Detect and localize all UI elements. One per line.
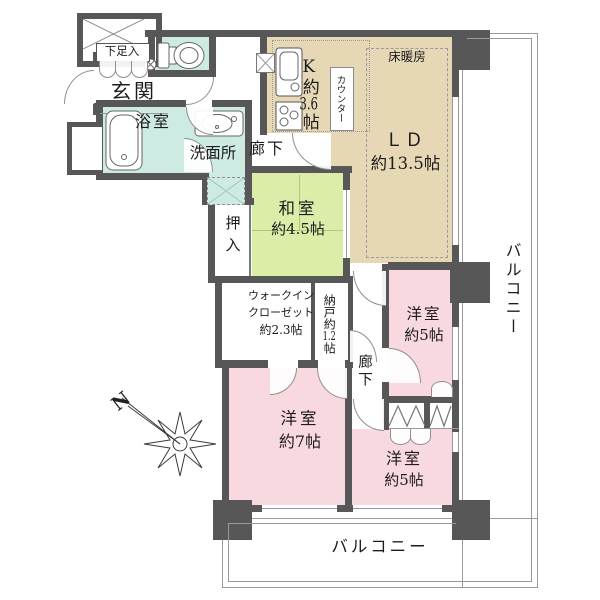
folding-door-icon — [430, 404, 453, 428]
pipe-space-small — [256, 53, 275, 73]
label-wic-2: クローゼット — [236, 307, 326, 319]
nando-num: 1.2 — [322, 330, 336, 342]
wall — [212, 100, 252, 107]
label-ld-name: ＬＤ — [365, 131, 445, 151]
label-balcony-right: バルコニー — [503, 222, 521, 357]
floorplan: N 下足入 玄関 浴室 洗面所 廊下 K約3.6帖 カウンター 床暖房 ＬＤ 約… — [0, 0, 600, 600]
washing-machine-space — [207, 177, 245, 205]
wall — [260, 37, 267, 135]
wall — [452, 380, 459, 434]
cabinet-door-arc — [99, 61, 116, 78]
label-bedroom7-name: 洋室 — [270, 410, 330, 428]
wall — [145, 30, 459, 37]
label-washitsu-size: 約4.5帖 — [264, 221, 332, 238]
window-line — [458, 97, 459, 245]
wall — [245, 166, 352, 173]
balcony-inner-line — [467, 38, 531, 39]
wall — [215, 276, 222, 368]
label-balcony-bottom: バルコニー — [305, 538, 455, 556]
label-hall-lower: 廊下 — [355, 347, 371, 395]
pillar — [452, 30, 490, 70]
entrance-door-arc — [64, 70, 94, 104]
kitchen-num: 3.6 — [299, 96, 319, 113]
wall — [209, 30, 216, 77]
floor-heating-zone — [366, 48, 448, 258]
toilet-door-arc — [186, 77, 214, 105]
label-bedroom7-size: 約7帖 — [270, 433, 330, 451]
balcony-inner-line — [531, 38, 532, 582]
wall — [452, 303, 459, 327]
balcony-inner-line — [228, 523, 229, 581]
wall — [208, 205, 215, 283]
nando-prefix: 納戸約 — [322, 294, 336, 330]
label-nando: 納戸約1.2帖 — [322, 287, 335, 361]
wall — [96, 173, 209, 180]
compass-icon: N — [108, 382, 228, 494]
cabinet-door-arc — [115, 61, 132, 78]
wall — [298, 360, 318, 368]
balcony-inner-line — [228, 523, 456, 524]
label-bedroom5-top-name: 洋室 — [396, 306, 452, 323]
pipe-space-box — [67, 122, 102, 175]
kitchen-prefix: K約 — [299, 57, 319, 96]
pillar — [452, 500, 490, 540]
folding-door-arc — [410, 429, 431, 445]
window-line — [353, 508, 442, 509]
oshiire-sliding-line — [249, 205, 251, 276]
label-wic-3: 約2.3帖 — [236, 324, 326, 337]
wall — [388, 262, 459, 270]
window-line — [458, 327, 459, 380]
window-line — [452, 327, 453, 380]
corridor-door-arc — [353, 271, 386, 306]
toilet-icon — [157, 39, 207, 72]
label-genkan: 玄関 — [100, 80, 168, 102]
label-wic-1: ウォークイン — [236, 290, 326, 302]
window-line — [262, 508, 337, 509]
label-bedroom5-bottom-size: 約5帖 — [374, 472, 434, 489]
label-counter: カウンター — [334, 70, 344, 128]
label-bedroom5-bottom-name: 洋室 — [374, 450, 434, 468]
folding-door-arc — [431, 381, 453, 397]
sliding-door-line — [346, 190, 347, 258]
folding-door-arc — [390, 429, 411, 445]
label-ld-size: 約13.5帖 — [358, 155, 453, 173]
label-shoe-cabinet: 下足入 — [97, 45, 147, 58]
balcony-inner-line — [228, 581, 531, 582]
pillar — [450, 262, 490, 303]
label-bedroom5-top-size: 約5帖 — [396, 327, 452, 344]
pillar — [213, 500, 252, 540]
label-washitsu-name: 和室 — [268, 200, 328, 218]
hatch-x — [257, 54, 274, 72]
window-line — [452, 432, 453, 452]
wall — [383, 396, 459, 403]
label-hall-upper: 廊下 — [246, 140, 288, 158]
ld-entry-door-arc — [292, 133, 331, 170]
label-floor-heating: 床暖房 — [380, 50, 434, 64]
compass-n: N — [108, 387, 135, 415]
bedroom5-bottom-door-arc — [353, 399, 384, 431]
wall — [176, 100, 186, 107]
label-oshiire: 押入 — [224, 206, 241, 268]
kitchen-suffix: 帖 — [299, 113, 319, 131]
window-line — [458, 432, 459, 452]
label-kitchen: K約3.6帖 — [299, 50, 318, 138]
nando-suffix: 帖 — [322, 342, 336, 354]
hatch-x — [208, 178, 244, 204]
folding-door-icon — [389, 404, 425, 428]
label-bath: 浴室 — [125, 113, 181, 131]
label-washroom: 洗面所 — [182, 145, 244, 162]
cabinet-door-arc — [131, 61, 148, 78]
wall — [311, 276, 353, 283]
